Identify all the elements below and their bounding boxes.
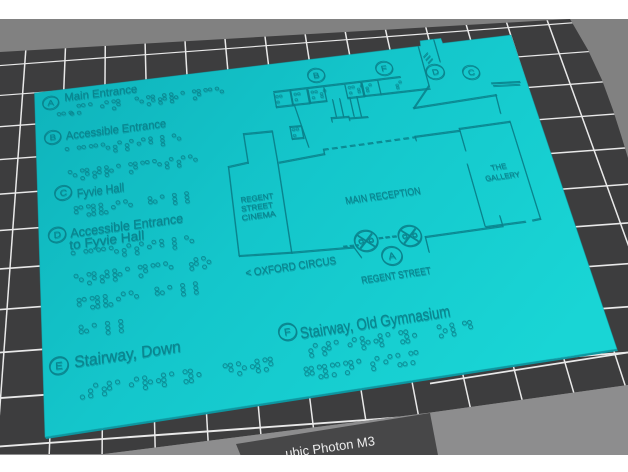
svg-text:B: B [49,132,56,142]
svg-text:D: D [54,230,62,241]
svg-text:E: E [55,360,63,373]
svg-text:A: A [47,98,54,108]
svg-text:C: C [60,188,68,198]
